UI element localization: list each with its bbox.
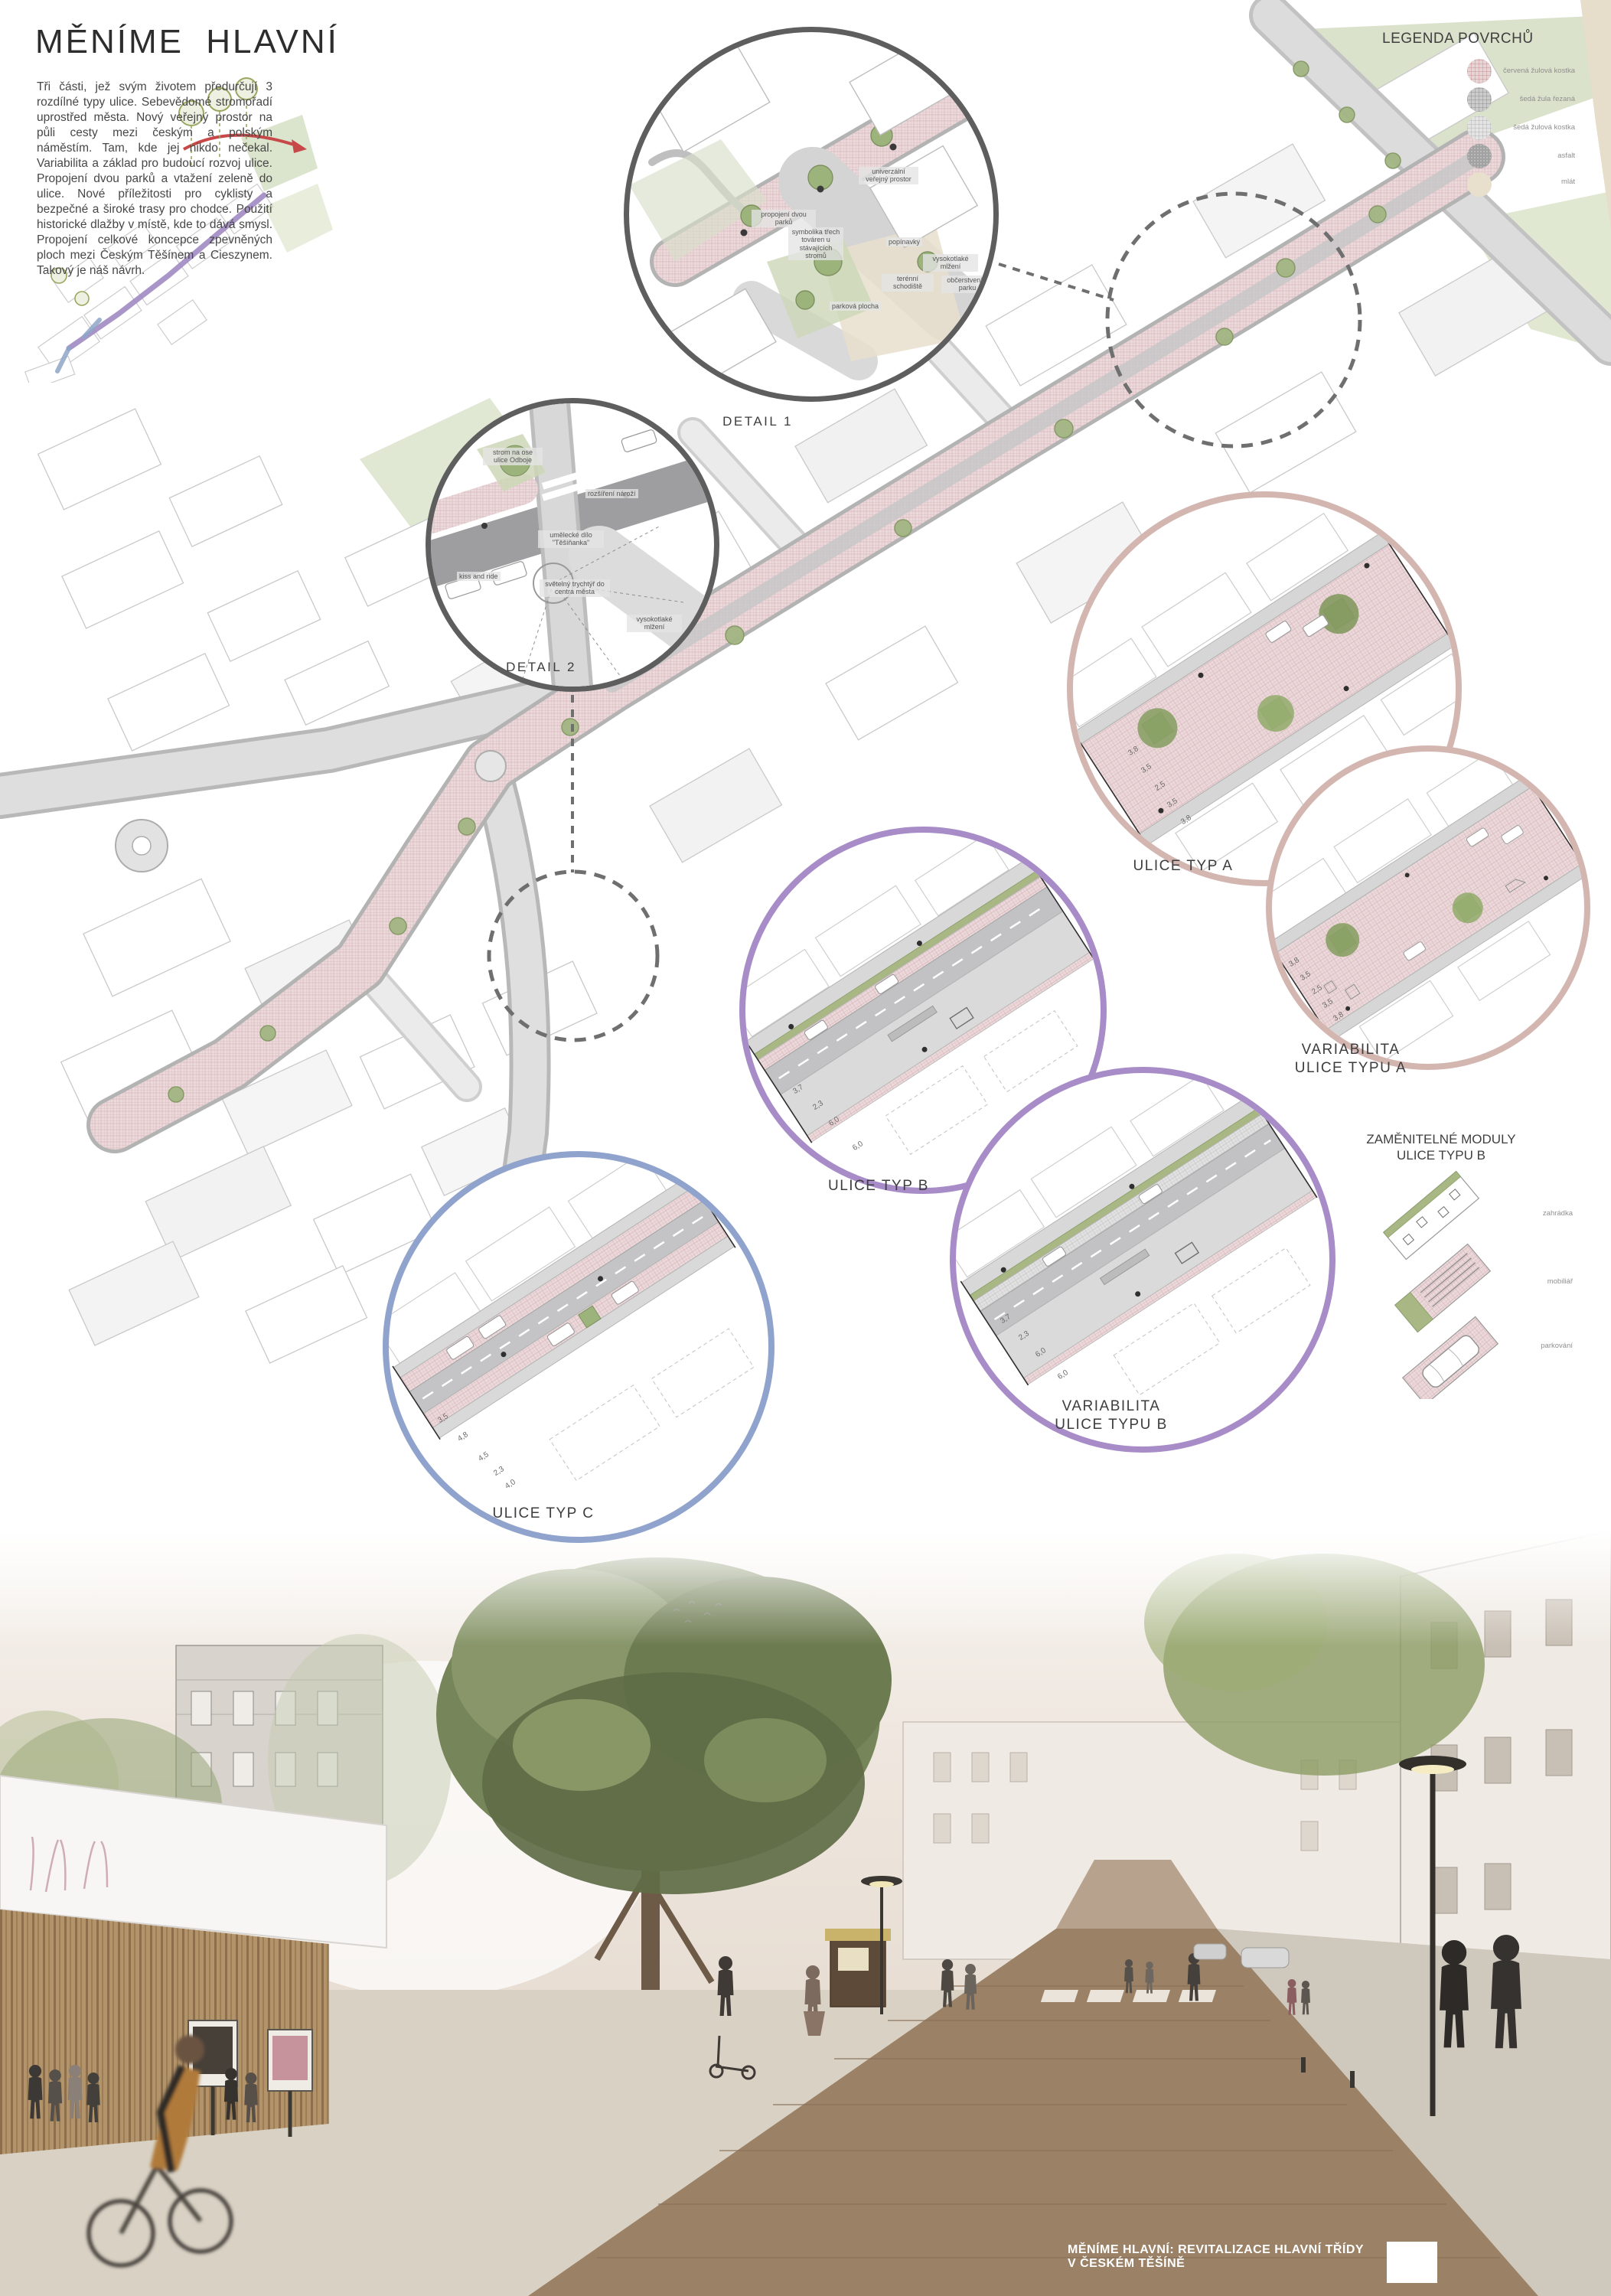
mini-roundabout <box>475 751 506 781</box>
legend-title: LEGENDA POVRCHŮ <box>1382 31 1534 47</box>
annotation: terénní schodiště <box>882 274 934 292</box>
annotation: parková plocha <box>830 302 881 311</box>
logo-placeholder <box>1387 2242 1437 2283</box>
legend-item-label: šedá žulová kostka <box>1489 123 1575 132</box>
modules-title-line1: ZAMĚNITELNÉ MODULY <box>1349 1131 1533 1147</box>
annotation: strom na ose ulice Odboje <box>483 448 543 465</box>
annotation: popínavky <box>886 237 922 246</box>
type-c-label: ULICE TYP C <box>474 1505 612 1523</box>
street-render <box>0 1531 1611 2296</box>
legend-item-label: šedá žula řezaná <box>1489 95 1575 103</box>
variability-a-circle: 3,8 3,5 2,5 3,5 3,8 <box>1266 745 1590 1070</box>
footer-caption: MĚNÍME HLAVNÍ: REVITALIZACE HLAVNÍ TŘÍDY… <box>1068 2243 1374 2271</box>
variability-b-label-line2: ULICE TYPU B <box>1027 1416 1195 1434</box>
variability-b-circle: 3,7 2,3 6,0 6,0 <box>950 1067 1335 1453</box>
variability-a-label-line1: VARIABILITA <box>1267 1041 1435 1059</box>
competition-poster: MĚNÍME HLAVNÍ Tři části, jež svým živote… <box>0 0 1611 2296</box>
type-c-circle: 3,5 4,8 4,5 2,3 4,0 <box>383 1151 775 1543</box>
minimap-green <box>264 184 333 253</box>
variability-a-label: VARIABILITA ULICE TYPU A <box>1267 1041 1435 1078</box>
module-label: zahrádka <box>1481 1209 1573 1218</box>
detail2-label: DETAIL 2 <box>476 660 606 675</box>
annotation: rozšíření nároží <box>585 489 638 498</box>
variability-b-label-line1: VARIABILITA <box>1027 1397 1195 1416</box>
type-c-axon <box>389 1157 768 1537</box>
annotation: světelný trychtýř do centra města <box>540 579 610 597</box>
detail1-circle: propojení dvou parků univerzální veřejný… <box>624 27 999 402</box>
annotation: vysokotlaké mlžení <box>923 254 978 272</box>
module-label: parkování <box>1481 1342 1573 1350</box>
annotation: symbolika třech továren u stávajících st… <box>788 227 843 260</box>
annotation: kiss and ride <box>457 572 501 581</box>
intro-paragraph: Tři části, jež svým životem předurčují 3… <box>37 80 272 279</box>
legend-item-label: mlát <box>1489 178 1575 186</box>
type-a-label: ULICE TYP A <box>1114 857 1252 876</box>
annotation: univerzální veřejný prostor <box>859 167 918 184</box>
variability-a-axon <box>1272 752 1586 1065</box>
legend-swatches <box>1467 59 1492 197</box>
photo-top-fade <box>0 1531 1611 1645</box>
swatch-grey-granite-sett <box>1467 116 1492 140</box>
variability-b-label: VARIABILITA ULICE TYPU B <box>1027 1397 1195 1434</box>
module-label: mobiliář <box>1481 1277 1573 1286</box>
annotation: občerstvení v parku <box>941 276 993 293</box>
poster-title: MĚNÍME HLAVNÍ <box>35 23 339 61</box>
modules-title: ZAMĚNITELNÉ MODULY ULICE TYPU B <box>1349 1131 1533 1164</box>
annotation: propojení dvou parků <box>752 210 816 227</box>
legend-item-label: asfalt <box>1489 152 1575 160</box>
legend-item-label: červená žulová kostka <box>1489 67 1575 75</box>
swatch-gravel <box>1467 172 1492 197</box>
modules-title-line2: ULICE TYPU B <box>1349 1147 1533 1163</box>
variability-b-axon <box>956 1073 1329 1446</box>
roundabout-island <box>132 837 151 855</box>
annotation: umělecké dílo "Těšíňanka" <box>538 530 604 548</box>
type-b-label: ULICE TYP B <box>810 1177 947 1195</box>
swatch-asphalt <box>1467 144 1492 168</box>
annotation: vysokotlaké mlžení <box>627 615 682 632</box>
swatch-grey-granite-cut <box>1467 87 1492 112</box>
detail2-circle: strom na ose ulice Odboje rozšíření náro… <box>426 398 719 692</box>
swatch-red-granite-sett <box>1467 59 1492 83</box>
